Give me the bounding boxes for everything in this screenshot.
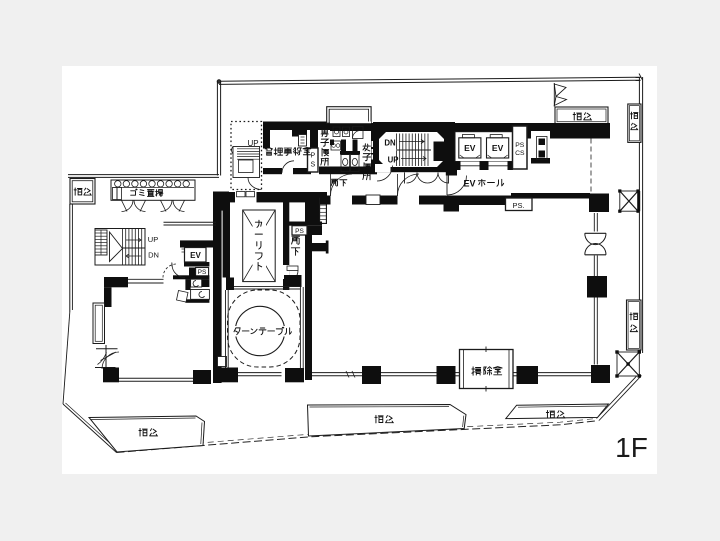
svg-text:CS: CS bbox=[515, 150, 525, 157]
svg-text:UP: UP bbox=[388, 156, 399, 165]
svg-text:EV: EV bbox=[492, 143, 504, 153]
svg-text:1F: 1F bbox=[615, 432, 648, 463]
svg-text:DN: DN bbox=[384, 139, 396, 148]
svg-text:EV: EV bbox=[464, 143, 476, 153]
svg-text:EV: EV bbox=[463, 178, 475, 188]
svg-text:PS.: PS. bbox=[512, 201, 524, 210]
svg-text:P: P bbox=[310, 153, 315, 160]
svg-text:EV: EV bbox=[190, 251, 201, 260]
svg-text:PS: PS bbox=[515, 142, 525, 149]
svg-text:DN: DN bbox=[148, 251, 159, 260]
svg-text:S: S bbox=[310, 162, 315, 169]
svg-text:PS: PS bbox=[295, 228, 304, 235]
svg-text:PS: PS bbox=[198, 269, 207, 276]
svg-text:UP: UP bbox=[148, 235, 158, 244]
